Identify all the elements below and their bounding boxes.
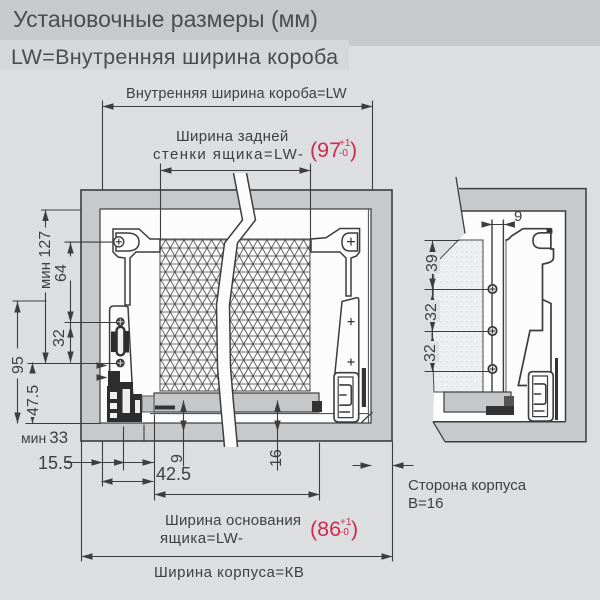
svg-text:32: 32 [423, 303, 440, 321]
svg-text:Сторона корпуса: Сторона корпуса [408, 477, 527, 494]
svg-text:): ) [350, 138, 357, 162]
svg-text:16: 16 [268, 449, 285, 467]
svg-text:-0: -0 [339, 148, 348, 159]
svg-text:-0: -0 [340, 527, 349, 538]
svg-text:9: 9 [169, 454, 186, 463]
svg-text:32: 32 [422, 344, 439, 362]
svg-text:стенки ящика=LW-: стенки ящика=LW- [153, 146, 304, 163]
svg-text:(86: (86 [310, 517, 341, 541]
svg-text:Ширина основания: Ширина основания [165, 512, 301, 529]
svg-text:15.5: 15.5 [38, 453, 73, 473]
svg-text:В=16: В=16 [408, 495, 443, 512]
svg-text:9: 9 [514, 208, 522, 225]
svg-text:LW=Внутренняя ширина короба: LW=Внутренняя ширина короба [11, 45, 338, 69]
svg-text:47.5: 47.5 [25, 385, 42, 416]
svg-text:мин 127: мин 127 [37, 231, 54, 289]
svg-text:Внутренняя ширина короба=LW: Внутренняя ширина короба=LW [126, 86, 347, 102]
svg-text:мин33: мин33 [21, 428, 68, 447]
svg-text:32: 32 [51, 329, 68, 347]
svg-text:(97: (97 [310, 138, 341, 162]
svg-text:39: 39 [424, 254, 441, 272]
svg-text:42.5: 42.5 [156, 464, 191, 484]
svg-text:64: 64 [53, 264, 70, 282]
svg-text:Ширина корпуса=КВ: Ширина корпуса=КВ [154, 564, 304, 581]
svg-text:ящика=LW-: ящика=LW- [160, 530, 243, 547]
svg-text:95: 95 [10, 356, 27, 374]
svg-text:Ширина задней: Ширина задней [176, 128, 289, 145]
svg-text:): ) [351, 517, 358, 541]
svg-text:Установочные размеры (мм): Установочные размеры (мм) [13, 6, 318, 32]
